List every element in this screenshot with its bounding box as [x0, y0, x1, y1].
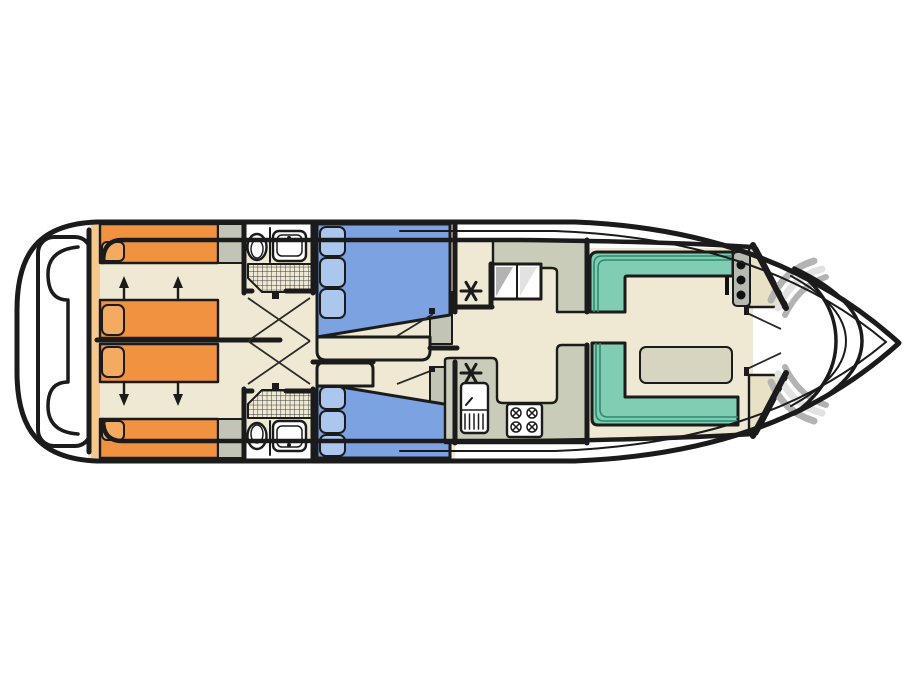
stairs [493, 264, 541, 299]
bathroom-starboard [248, 390, 314, 455]
foot-bench [317, 337, 430, 360]
boat-deck-plan [0, 0, 916, 687]
cabin-port [317, 224, 450, 360]
sink-unit [461, 383, 488, 433]
toilet [248, 423, 267, 449]
pillows [320, 387, 345, 456]
floor-plan-canvas [0, 0, 916, 687]
bathroom-port [248, 228, 314, 292]
shower-tray [248, 264, 313, 292]
shower-tray [248, 390, 313, 418]
saloon-table [640, 347, 732, 383]
faucet [287, 443, 291, 447]
throttle-lever [725, 277, 729, 295]
foot-bench [317, 362, 373, 386]
stove [507, 404, 542, 437]
